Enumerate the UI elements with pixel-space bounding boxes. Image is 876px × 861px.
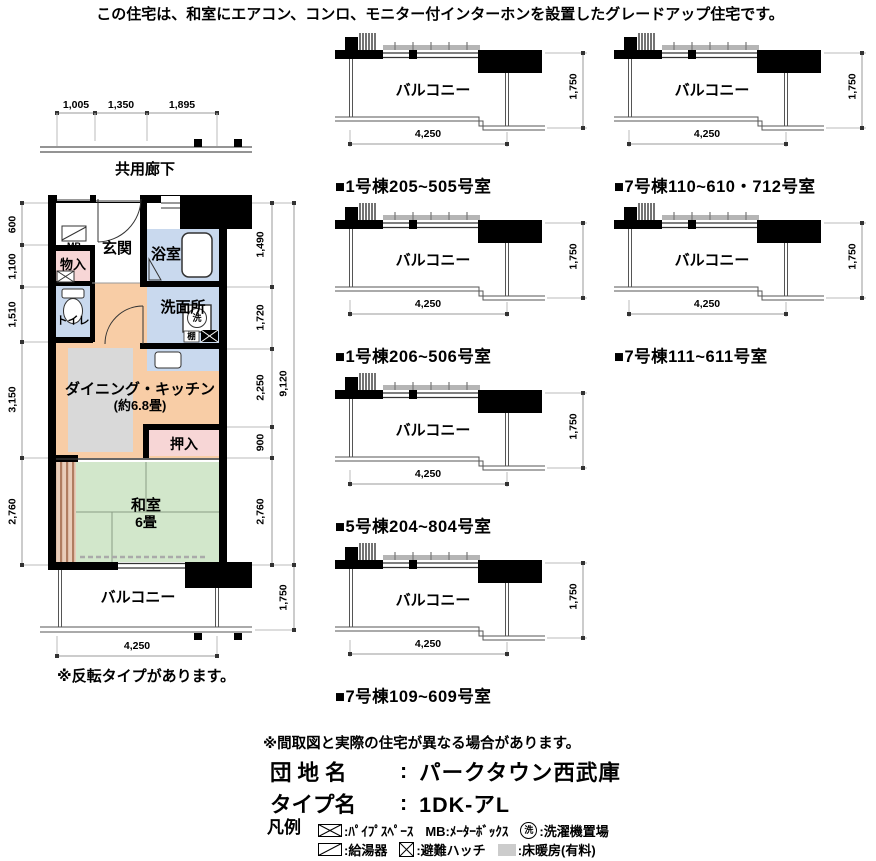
floorplan-sheet: この住宅は、和室にエアコン、コンロ、モニター付インターホンを設置したグレードアッ… [0, 0, 876, 861]
room-toilet-label: トイレ [56, 315, 90, 328]
unit-range-label: ■1号棟205~505号室 [335, 173, 491, 197]
legend-floor-heating-text: :床暖房(有料) [518, 840, 596, 859]
wood-strip [56, 462, 76, 562]
balcony-depth-dim: 1,750 [568, 567, 581, 627]
balcony-depth-dim: 1,750 [568, 57, 581, 117]
bathtub [182, 233, 212, 277]
dim-right-total: 9,120 [278, 354, 291, 414]
balcony-diagram-3: バルコニー 4,250 1,750 ■1号棟206~506号室 [333, 203, 613, 371]
room-dk-label: ダイニング・キッチン [60, 381, 220, 398]
disclaimer-note: ※間取図と実際の住宅が異なる場合があります。 [263, 736, 580, 753]
unit-range-label: ■5号棟204~804号室 [335, 513, 491, 537]
laundry-symbol-label: 洗 [190, 313, 204, 323]
dim-main-balcony-depth: 1,750 [278, 568, 291, 628]
hatch-symbol [201, 330, 218, 342]
legend-water-heater-text: :給湯器 [344, 840, 387, 859]
room-entrance-label: 玄関 [94, 240, 140, 257]
balcony-label: バルコニー [373, 589, 493, 610]
room-dk-size: (約6.8畳) [60, 399, 220, 414]
room-closet-label: 押入 [149, 436, 219, 452]
floor-heating-icon [498, 844, 516, 856]
balcony-diagram-4: バルコニー 4,250 1,750 ■7号棟111~611号室 [612, 203, 876, 371]
estate-name-value: パークタウン西武庫 [419, 756, 621, 787]
balcony-diagram-5: バルコニー 4,250 1,750 ■5号棟204~804号室 [333, 373, 613, 541]
legend-water-heater: :給湯器 [318, 840, 387, 859]
balcony-label: バルコニー [652, 249, 772, 270]
unit-range-label: ■1号棟206~506号室 [335, 343, 491, 367]
legend-row-2: :給湯器 :避難ハッチ :床暖房(有料) [318, 840, 596, 859]
escape-hatch-icon [399, 842, 414, 857]
legend-pipe-space-text: :ﾊﾟｲﾌﾟｽﾍﾟｰｽ [344, 821, 413, 840]
balcony-depth-dim: 1,750 [568, 397, 581, 457]
entrance-door [98, 199, 141, 242]
balcony-width-dim: 4,250 [368, 298, 488, 310]
reverse-type-note: ※反転タイプがあります。 [57, 668, 235, 685]
dim-top-3: 1,895 [152, 99, 212, 111]
balcony-label: バルコニー [373, 79, 493, 100]
type-name-row: タイプ名 : 1DK-アL [270, 788, 510, 819]
balcony-diagram-1: バルコニー 4,250 1,750 ■1号棟205~505号室 [333, 33, 613, 201]
unit-range-label: ■7号棟110~610・712号室 [614, 173, 815, 197]
dim-left-5: 2,760 [7, 482, 20, 542]
pipe-space-icon [318, 824, 342, 837]
estate-name-label: 団 地 名 [270, 756, 388, 787]
estate-name-row: 団 地 名 : パークタウン西武庫 [270, 756, 621, 787]
room-mb-label: MB [58, 241, 90, 251]
dim-right-5: 2,760 [255, 482, 268, 542]
dim-main-width: 4,250 [77, 640, 197, 652]
balcony-depth-dim: 1,750 [568, 227, 581, 287]
dim-right-1: 1,490 [255, 215, 268, 275]
dim-right-4: 900 [255, 413, 268, 473]
room-washroom-label: 洗面所 [147, 299, 219, 316]
balcony-label: バルコニー [373, 249, 493, 270]
main-balcony-label: バルコニー [95, 589, 181, 606]
legend-laundry-text: :洗濯機置場 [539, 821, 608, 840]
legend-pipe-space: :ﾊﾟｲﾌﾟｽﾍﾟｰｽ [318, 821, 413, 840]
balcony-width-dim: 4,250 [368, 638, 488, 650]
legend-laundry: 洗 :洗濯機置場 [520, 821, 608, 840]
legend-escape-hatch: :避難ハッチ [399, 840, 485, 859]
balcony-width-dim: 4,250 [647, 128, 767, 140]
dim-top-2: 1,350 [91, 99, 151, 111]
dim-right-3: 2,250 [255, 358, 268, 418]
legend-row-1: :ﾊﾟｲﾌﾟｽﾍﾟｰｽ MB:ﾒｰﾀｰﾎﾞｯｸｽ 洗 :洗濯機置場 [318, 821, 609, 840]
laundry-circle-icon: 洗 [520, 822, 537, 839]
balcony-width-dim: 4,250 [368, 128, 488, 140]
left-dimensions [20, 201, 48, 567]
dim-left-4: 3,150 [7, 370, 20, 430]
water-heater-icon [318, 843, 342, 856]
legend-floor-heating: :床暖房(有料) [498, 840, 596, 859]
room-tatami-size: 6畳 [96, 514, 196, 530]
estate-name-separator: : [400, 759, 407, 784]
balcony-depth-dim: 1,750 [847, 57, 860, 117]
balcony-width-dim: 4,250 [368, 468, 488, 480]
room-storage-label: 物入 [56, 258, 90, 273]
dim-right-2: 1,720 [255, 288, 268, 348]
corridor-label: 共用廊下 [100, 161, 190, 178]
shelf-label: 棚 [184, 332, 199, 342]
unit-range-label: ■7号棟111~611号室 [614, 343, 768, 367]
balcony-depth-dim: 1,750 [847, 227, 860, 287]
unit-range-label: ■7号棟109~609号室 [335, 683, 491, 707]
type-name-label: タイプ名 [270, 788, 388, 819]
balcony-label: バルコニー [652, 79, 772, 100]
dim-left-3: 1,510 [7, 285, 20, 345]
balcony-width-dim: 4,250 [647, 298, 767, 310]
balcony-diagram-2: バルコニー 4,250 1,750 ■7号棟110~610・712号室 [612, 33, 876, 201]
type-name-value: 1DK-アL [419, 788, 510, 819]
legend-meter-box-text: MB:ﾒｰﾀｰﾎﾞｯｸｽ [425, 821, 508, 840]
legend-meter-box: MB:ﾒｰﾀｰﾎﾞｯｸｽ [425, 821, 508, 840]
legend-escape-hatch-text: :避難ハッチ [416, 840, 485, 859]
type-name-separator: : [400, 791, 407, 816]
balcony-diagram-6: バルコニー 4,250 1,750 ■7号棟109~609号室 [333, 543, 613, 711]
room-bath-label: 浴室 [149, 246, 183, 263]
corridor-dimensions [40, 111, 252, 152]
legend-title: 凡例 [267, 818, 301, 838]
balcony-label: バルコニー [373, 419, 493, 440]
room-tatami-label: 和室 [96, 497, 196, 514]
